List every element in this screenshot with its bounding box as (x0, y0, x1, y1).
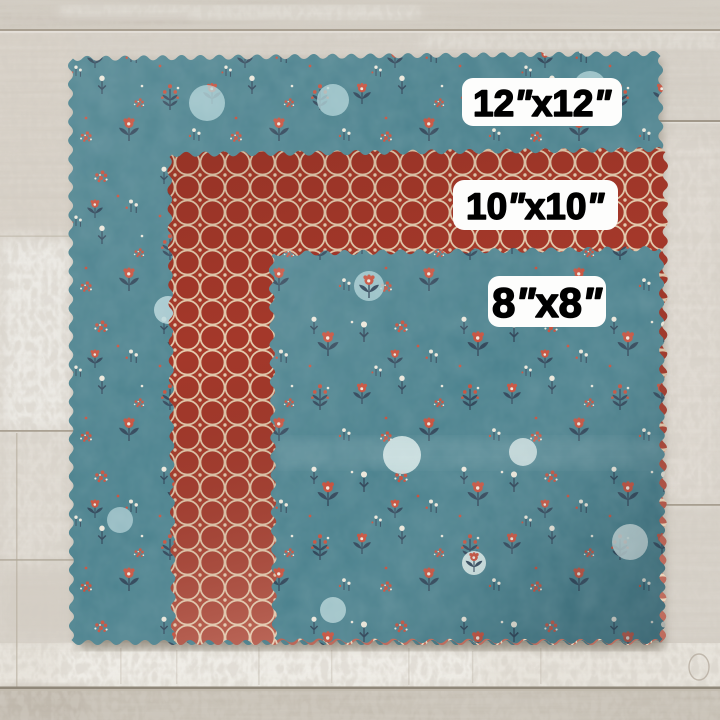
svg-text:12"x12": 12"x12" (473, 83, 611, 124)
svg-text:10"x10": 10"x10" (466, 186, 604, 227)
svg-text:8"x8": 8"x8" (492, 279, 603, 326)
